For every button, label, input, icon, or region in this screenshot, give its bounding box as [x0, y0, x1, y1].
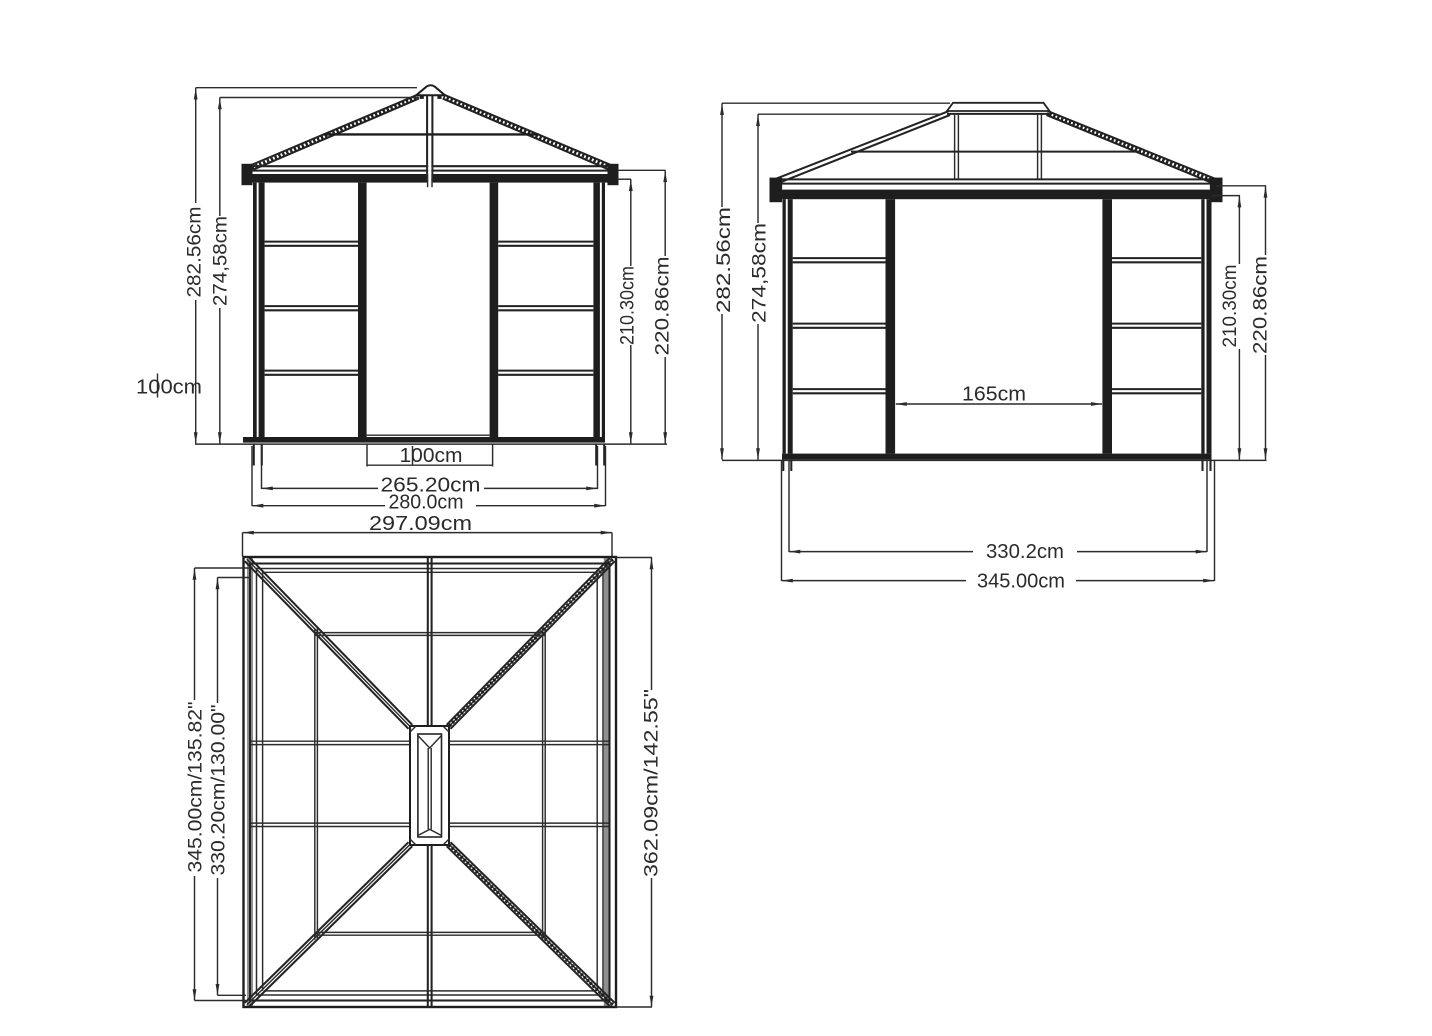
svg-text:210.30cm: 210.30cm — [618, 266, 639, 345]
svg-text:274,58cm: 274,58cm — [750, 223, 771, 323]
svg-text:280.0cm: 280.0cm — [389, 492, 464, 514]
svg-text:274,58cm: 274,58cm — [211, 216, 232, 306]
svg-text:220.86cm: 220.86cm — [653, 257, 674, 356]
svg-text:165cm: 165cm — [962, 384, 1026, 406]
svg-text:100cm: 100cm — [136, 377, 202, 399]
svg-text:362.09cm/142.55": 362.09cm/142.55" — [642, 689, 663, 877]
svg-text:282.56cm: 282.56cm — [185, 207, 206, 298]
svg-text:345.00cm/135.82": 345.00cm/135.82" — [186, 702, 207, 873]
svg-text:210.30cm: 210.30cm — [1220, 265, 1241, 348]
svg-text:100cm: 100cm — [400, 445, 463, 467]
svg-text:345.00cm: 345.00cm — [977, 570, 1065, 592]
svg-text:297.09cm: 297.09cm — [369, 513, 472, 535]
svg-text:330.2cm: 330.2cm — [986, 541, 1064, 563]
svg-text:330.20cm/130.00": 330.20cm/130.00" — [209, 705, 230, 876]
svg-text:282.56cm: 282.56cm — [714, 207, 735, 313]
svg-text:220.86cm: 220.86cm — [1250, 256, 1271, 354]
